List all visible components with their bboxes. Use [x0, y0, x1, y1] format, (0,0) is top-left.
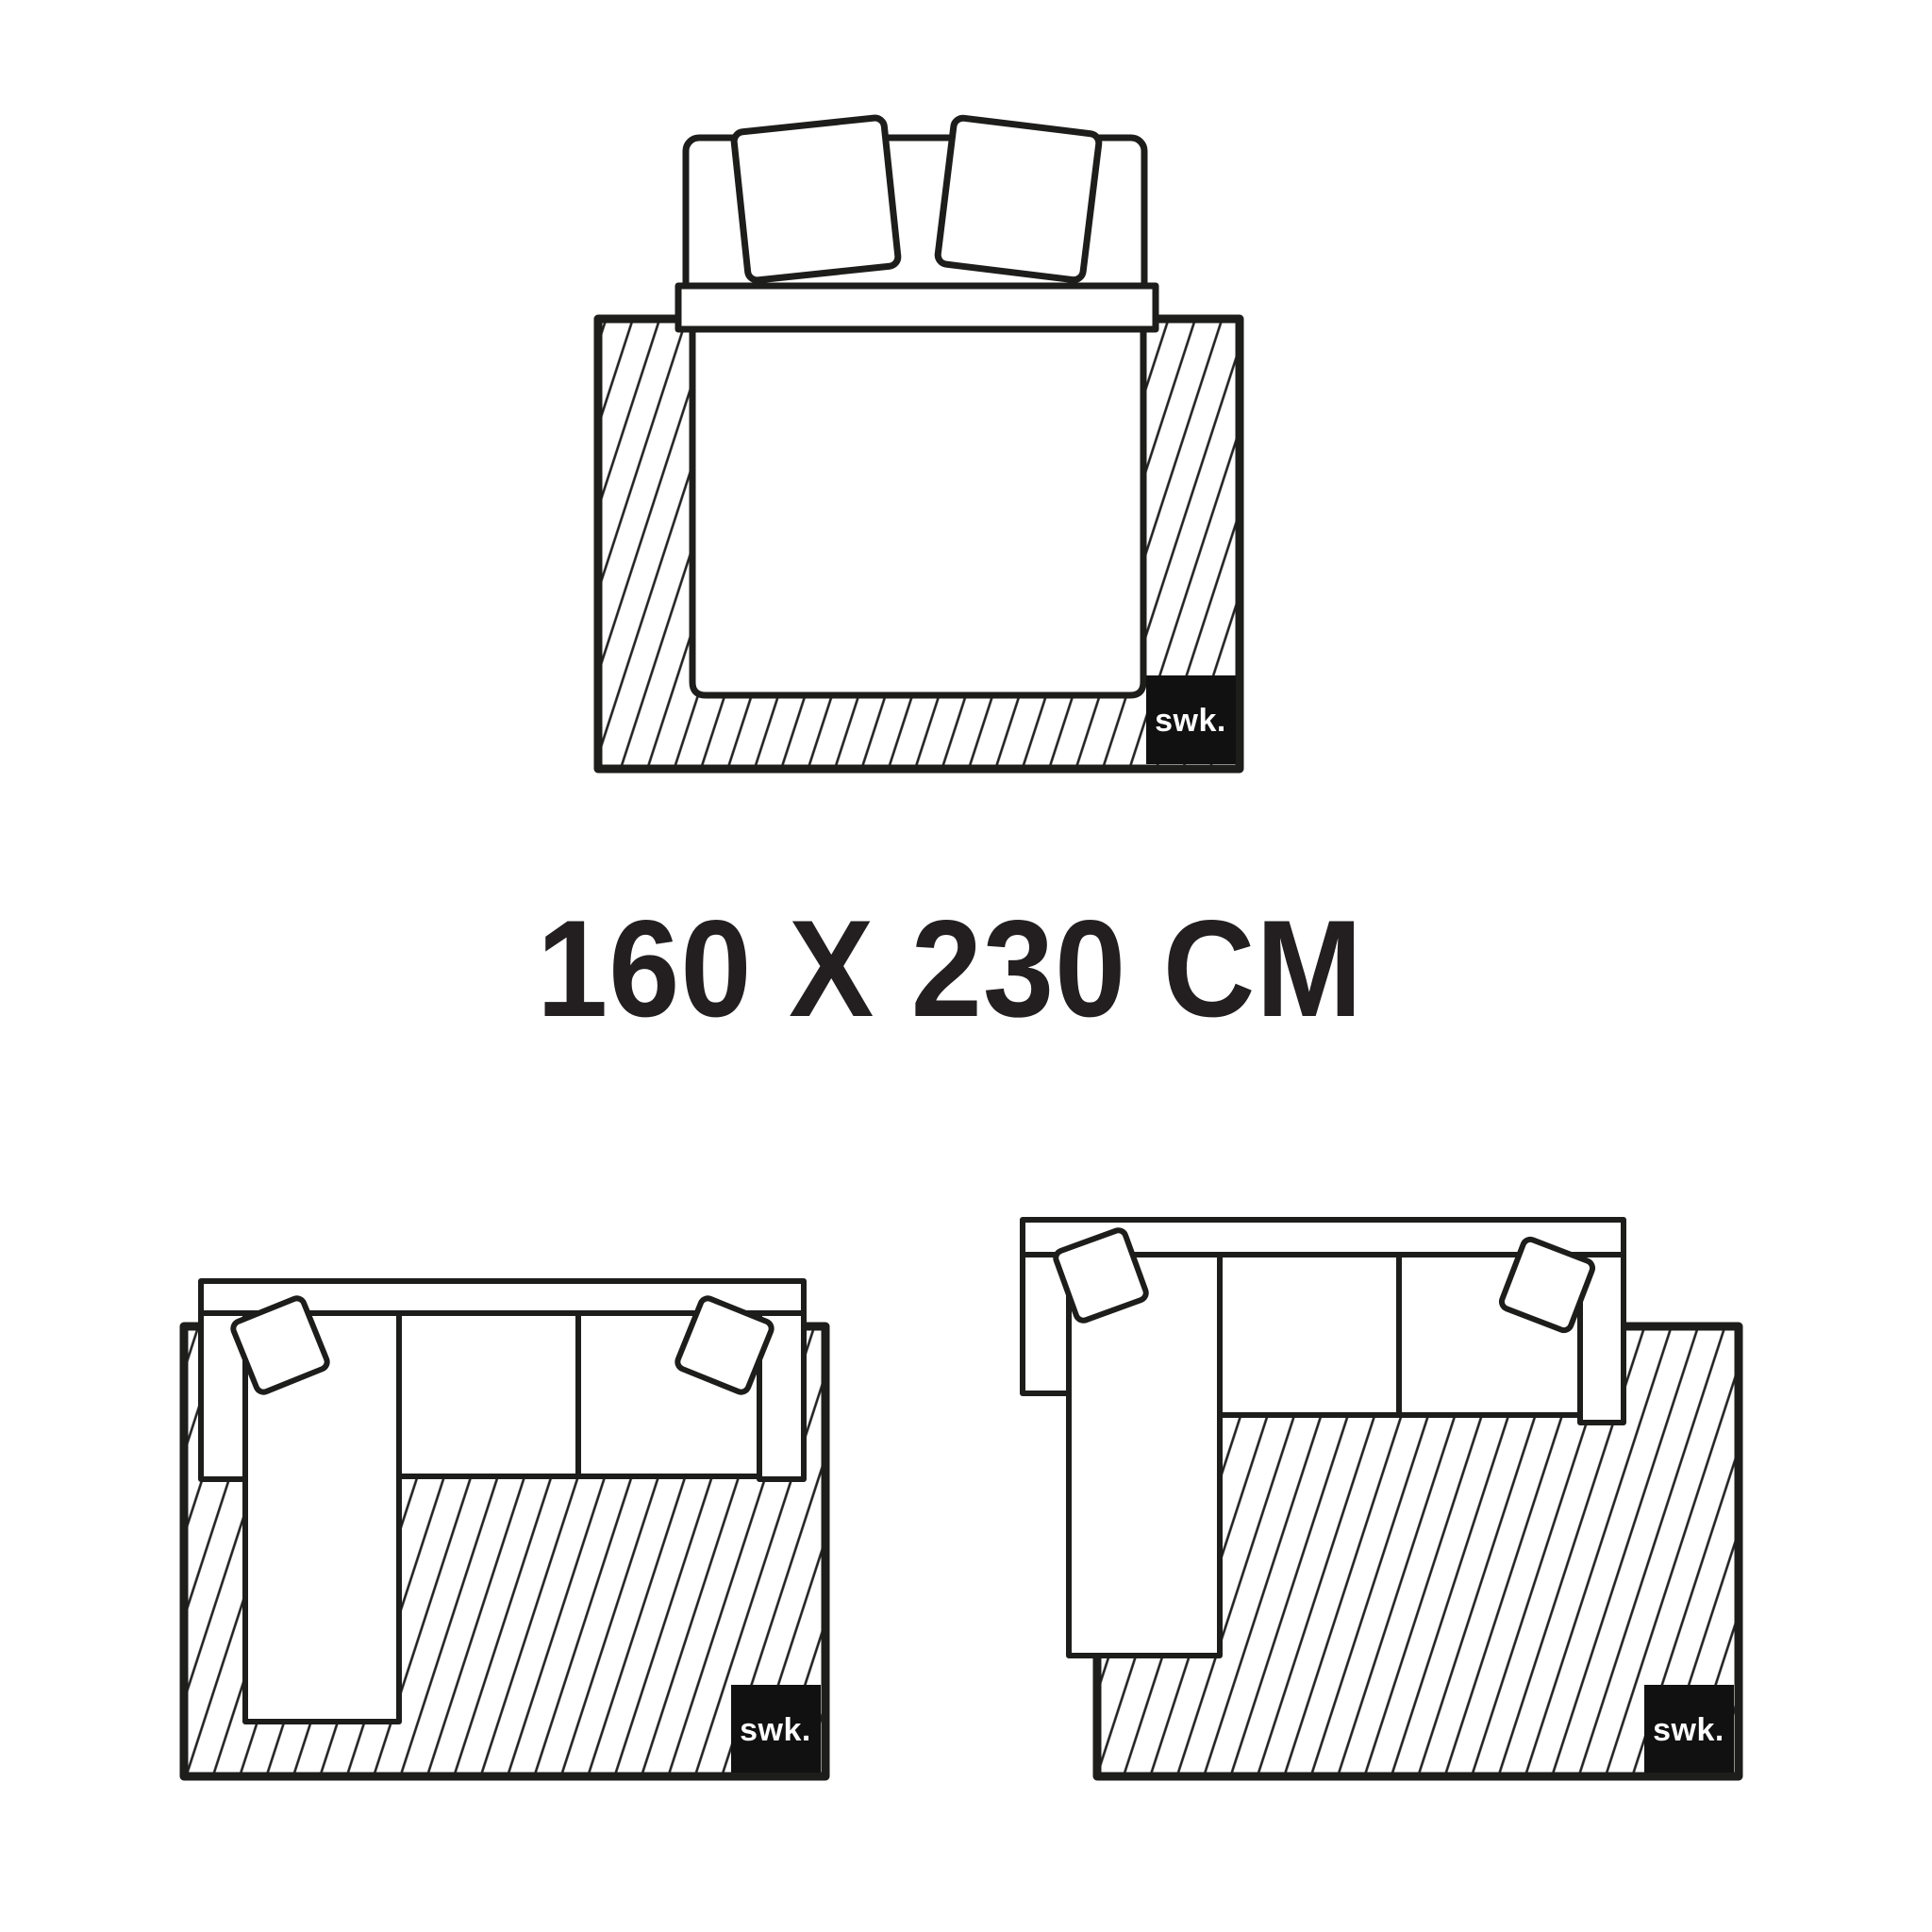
size-label: 160 X 230 CM [537, 891, 1363, 1045]
bed-duvet [692, 329, 1143, 695]
sofa-seat-cushion-1 [399, 1313, 578, 1476]
bed-pillow-right [937, 117, 1100, 281]
rug-size-guide: swk. 160 X 230 CM swk. [0, 0, 1932, 1932]
brand-tag-sofa-left: swk. [731, 1685, 821, 1773]
brand-tag-sofa-right: swk. [1644, 1685, 1734, 1773]
brand-tag-bed: swk. [1146, 675, 1236, 764]
bed-pillow-left [733, 117, 899, 281]
brand-logo-text: swk. [1653, 1712, 1724, 1748]
diagram-bed-on-rug: swk. [598, 117, 1240, 769]
bed-sheet-fold [678, 286, 1156, 329]
brand-logo-text: swk. [1155, 703, 1226, 739]
diagram-sofa-left: swk. [184, 1281, 825, 1776]
size-guide-canvas: swk. 160 X 230 CM swk. [0, 0, 1932, 1932]
diagram-sofa-right: swk. [1023, 1220, 1739, 1776]
brand-logo-text: swk. [740, 1712, 811, 1748]
sofa-seat-cushion-1 [1220, 1255, 1399, 1415]
